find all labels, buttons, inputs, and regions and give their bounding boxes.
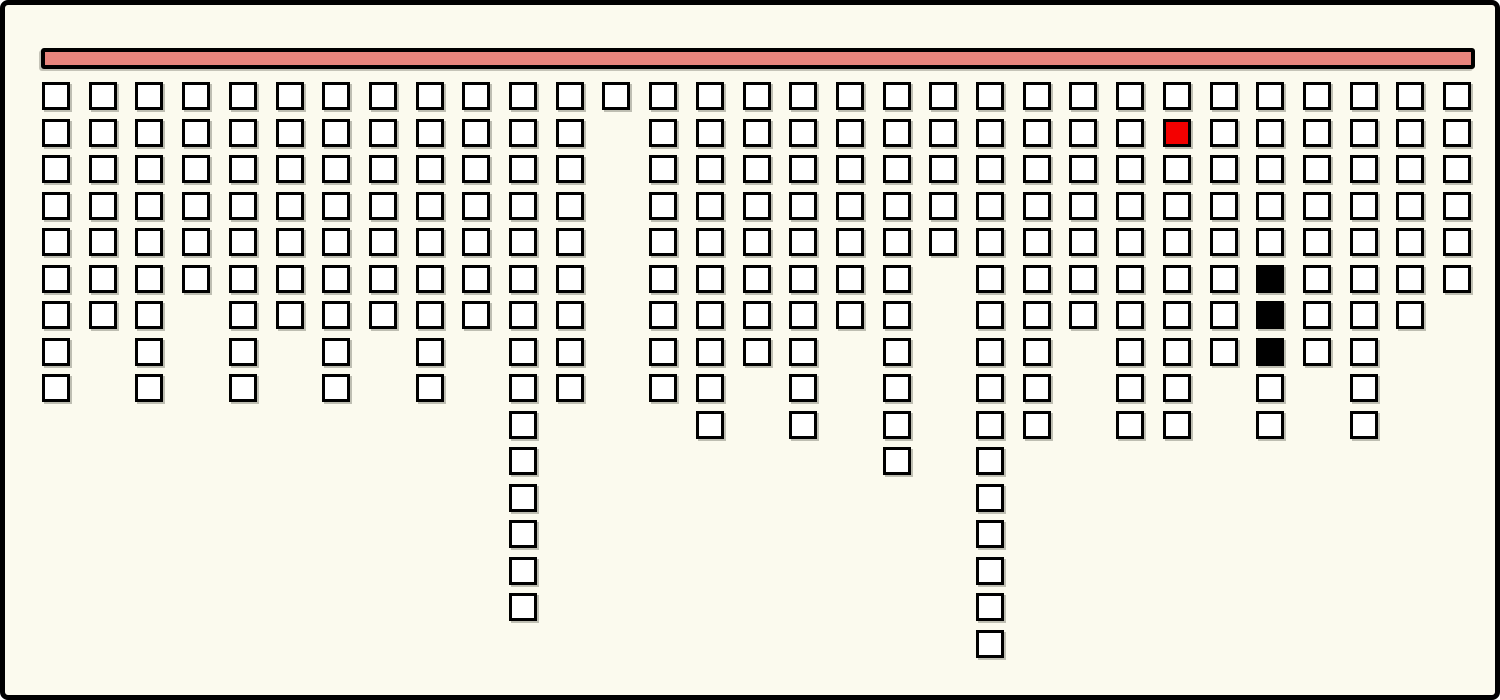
block[interactable] bbox=[416, 82, 444, 110]
block[interactable] bbox=[42, 228, 70, 256]
block[interactable] bbox=[696, 301, 724, 329]
block[interactable] bbox=[696, 228, 724, 256]
block[interactable] bbox=[836, 228, 864, 256]
block[interactable] bbox=[1256, 228, 1284, 256]
block[interactable] bbox=[649, 119, 677, 147]
block[interactable] bbox=[276, 192, 304, 220]
block[interactable] bbox=[1116, 119, 1144, 147]
block[interactable] bbox=[836, 265, 864, 293]
block[interactable] bbox=[929, 228, 957, 256]
block[interactable] bbox=[556, 338, 584, 366]
block[interactable] bbox=[743, 338, 771, 366]
block[interactable] bbox=[883, 82, 911, 110]
block[interactable] bbox=[836, 82, 864, 110]
block[interactable] bbox=[1350, 82, 1378, 110]
block[interactable] bbox=[1069, 228, 1097, 256]
block[interactable] bbox=[1303, 338, 1331, 366]
block[interactable] bbox=[789, 265, 817, 293]
block[interactable] bbox=[1116, 301, 1144, 329]
block[interactable] bbox=[1210, 338, 1238, 366]
block[interactable] bbox=[976, 228, 1004, 256]
block[interactable] bbox=[1350, 301, 1378, 329]
black-block[interactable] bbox=[1256, 265, 1284, 293]
block[interactable] bbox=[1116, 155, 1144, 183]
block[interactable] bbox=[602, 82, 630, 110]
block[interactable] bbox=[649, 192, 677, 220]
block[interactable] bbox=[883, 374, 911, 402]
block[interactable] bbox=[509, 119, 537, 147]
block[interactable] bbox=[883, 338, 911, 366]
block[interactable] bbox=[416, 192, 444, 220]
block[interactable] bbox=[883, 119, 911, 147]
black-block[interactable] bbox=[1256, 338, 1284, 366]
block[interactable] bbox=[1069, 82, 1097, 110]
block[interactable] bbox=[1303, 82, 1331, 110]
block[interactable] bbox=[649, 82, 677, 110]
block[interactable] bbox=[1069, 119, 1097, 147]
block[interactable] bbox=[789, 228, 817, 256]
block[interactable] bbox=[89, 82, 117, 110]
block[interactable] bbox=[1396, 228, 1424, 256]
block[interactable] bbox=[229, 155, 257, 183]
block[interactable] bbox=[743, 301, 771, 329]
block[interactable] bbox=[369, 119, 397, 147]
block[interactable] bbox=[789, 82, 817, 110]
block[interactable] bbox=[976, 119, 1004, 147]
block[interactable] bbox=[743, 265, 771, 293]
block[interactable] bbox=[276, 228, 304, 256]
block[interactable] bbox=[509, 265, 537, 293]
block[interactable] bbox=[696, 82, 724, 110]
block[interactable] bbox=[556, 155, 584, 183]
block[interactable] bbox=[1023, 265, 1051, 293]
block[interactable] bbox=[369, 155, 397, 183]
block[interactable] bbox=[1443, 119, 1471, 147]
block[interactable] bbox=[976, 374, 1004, 402]
block[interactable] bbox=[135, 192, 163, 220]
block[interactable] bbox=[789, 155, 817, 183]
block[interactable] bbox=[1210, 119, 1238, 147]
block[interactable] bbox=[1396, 82, 1424, 110]
block[interactable] bbox=[1396, 301, 1424, 329]
block[interactable] bbox=[416, 265, 444, 293]
block[interactable] bbox=[883, 155, 911, 183]
block[interactable] bbox=[322, 82, 350, 110]
block[interactable] bbox=[743, 119, 771, 147]
block[interactable] bbox=[182, 155, 210, 183]
block[interactable] bbox=[1163, 265, 1191, 293]
block[interactable] bbox=[696, 338, 724, 366]
block[interactable] bbox=[1303, 301, 1331, 329]
block[interactable] bbox=[789, 374, 817, 402]
block[interactable] bbox=[1210, 82, 1238, 110]
red-block[interactable] bbox=[1163, 119, 1191, 147]
block[interactable] bbox=[369, 265, 397, 293]
block[interactable] bbox=[135, 228, 163, 256]
block[interactable] bbox=[1163, 338, 1191, 366]
block[interactable] bbox=[322, 119, 350, 147]
block[interactable] bbox=[135, 82, 163, 110]
block[interactable] bbox=[369, 82, 397, 110]
block[interactable] bbox=[509, 520, 537, 548]
block[interactable] bbox=[789, 338, 817, 366]
block[interactable] bbox=[42, 82, 70, 110]
block[interactable] bbox=[1443, 82, 1471, 110]
block[interactable] bbox=[135, 301, 163, 329]
block[interactable] bbox=[276, 155, 304, 183]
block[interactable] bbox=[1210, 228, 1238, 256]
block[interactable] bbox=[1116, 82, 1144, 110]
block[interactable] bbox=[696, 374, 724, 402]
block[interactable] bbox=[883, 265, 911, 293]
block[interactable] bbox=[649, 228, 677, 256]
block[interactable] bbox=[883, 301, 911, 329]
block[interactable] bbox=[509, 557, 537, 585]
block[interactable] bbox=[322, 265, 350, 293]
block[interactable] bbox=[135, 338, 163, 366]
block[interactable] bbox=[229, 374, 257, 402]
block[interactable] bbox=[135, 265, 163, 293]
block[interactable] bbox=[462, 155, 490, 183]
block[interactable] bbox=[1443, 265, 1471, 293]
block[interactable] bbox=[229, 228, 257, 256]
block[interactable] bbox=[976, 411, 1004, 439]
block[interactable] bbox=[1396, 265, 1424, 293]
block[interactable] bbox=[89, 119, 117, 147]
block[interactable] bbox=[929, 82, 957, 110]
block[interactable] bbox=[976, 338, 1004, 366]
block[interactable] bbox=[1303, 119, 1331, 147]
block[interactable] bbox=[1303, 155, 1331, 183]
block[interactable] bbox=[976, 82, 1004, 110]
block[interactable] bbox=[696, 411, 724, 439]
block[interactable] bbox=[1163, 411, 1191, 439]
block[interactable] bbox=[1069, 265, 1097, 293]
block[interactable] bbox=[556, 82, 584, 110]
block[interactable] bbox=[1023, 119, 1051, 147]
block[interactable] bbox=[509, 82, 537, 110]
block[interactable] bbox=[789, 411, 817, 439]
block[interactable] bbox=[1443, 228, 1471, 256]
block[interactable] bbox=[1163, 192, 1191, 220]
block[interactable] bbox=[322, 338, 350, 366]
block[interactable] bbox=[1210, 301, 1238, 329]
block[interactable] bbox=[883, 447, 911, 475]
block[interactable] bbox=[1163, 155, 1191, 183]
block[interactable] bbox=[322, 301, 350, 329]
block[interactable] bbox=[696, 155, 724, 183]
block[interactable] bbox=[322, 228, 350, 256]
block[interactable] bbox=[89, 155, 117, 183]
block[interactable] bbox=[509, 192, 537, 220]
block[interactable] bbox=[836, 192, 864, 220]
block[interactable] bbox=[1023, 301, 1051, 329]
block[interactable] bbox=[229, 119, 257, 147]
block[interactable] bbox=[649, 301, 677, 329]
block[interactable] bbox=[229, 338, 257, 366]
block[interactable] bbox=[89, 301, 117, 329]
block[interactable] bbox=[883, 192, 911, 220]
block[interactable] bbox=[1163, 301, 1191, 329]
block[interactable] bbox=[1350, 119, 1378, 147]
block[interactable] bbox=[1350, 265, 1378, 293]
block[interactable] bbox=[416, 228, 444, 256]
block[interactable] bbox=[416, 338, 444, 366]
block[interactable] bbox=[976, 484, 1004, 512]
block[interactable] bbox=[1256, 119, 1284, 147]
block[interactable] bbox=[1396, 155, 1424, 183]
block[interactable] bbox=[462, 192, 490, 220]
block[interactable] bbox=[836, 301, 864, 329]
block[interactable] bbox=[229, 301, 257, 329]
block[interactable] bbox=[556, 301, 584, 329]
block[interactable] bbox=[462, 228, 490, 256]
block[interactable] bbox=[1443, 192, 1471, 220]
block[interactable] bbox=[1023, 192, 1051, 220]
block[interactable] bbox=[1396, 192, 1424, 220]
block[interactable] bbox=[182, 265, 210, 293]
block[interactable] bbox=[976, 557, 1004, 585]
block[interactable] bbox=[1023, 338, 1051, 366]
block[interactable] bbox=[276, 119, 304, 147]
block[interactable] bbox=[1116, 374, 1144, 402]
block[interactable] bbox=[42, 119, 70, 147]
block[interactable] bbox=[696, 192, 724, 220]
block[interactable] bbox=[696, 265, 724, 293]
block[interactable] bbox=[1210, 192, 1238, 220]
block[interactable] bbox=[649, 338, 677, 366]
block[interactable] bbox=[1116, 228, 1144, 256]
block[interactable] bbox=[976, 155, 1004, 183]
block[interactable] bbox=[649, 374, 677, 402]
block[interactable] bbox=[182, 82, 210, 110]
block-board bbox=[5, 5, 1495, 695]
block[interactable] bbox=[883, 411, 911, 439]
block[interactable] bbox=[1023, 155, 1051, 183]
block[interactable] bbox=[556, 228, 584, 256]
block[interactable] bbox=[1163, 82, 1191, 110]
block[interactable] bbox=[1116, 338, 1144, 366]
block[interactable] bbox=[1350, 338, 1378, 366]
block[interactable] bbox=[229, 192, 257, 220]
block[interactable] bbox=[1350, 374, 1378, 402]
block[interactable] bbox=[89, 265, 117, 293]
block[interactable] bbox=[696, 119, 724, 147]
block[interactable] bbox=[135, 374, 163, 402]
block[interactable] bbox=[1303, 228, 1331, 256]
block[interactable] bbox=[976, 192, 1004, 220]
block[interactable] bbox=[276, 265, 304, 293]
block[interactable] bbox=[416, 155, 444, 183]
block[interactable] bbox=[836, 155, 864, 183]
block[interactable] bbox=[509, 411, 537, 439]
block[interactable] bbox=[369, 228, 397, 256]
block[interactable] bbox=[1023, 82, 1051, 110]
block[interactable] bbox=[182, 228, 210, 256]
block[interactable] bbox=[509, 338, 537, 366]
block[interactable] bbox=[462, 82, 490, 110]
block[interactable] bbox=[929, 119, 957, 147]
block[interactable] bbox=[509, 301, 537, 329]
block[interactable] bbox=[1396, 119, 1424, 147]
block[interactable] bbox=[1023, 228, 1051, 256]
block[interactable] bbox=[1350, 228, 1378, 256]
block[interactable] bbox=[556, 192, 584, 220]
block[interactable] bbox=[1350, 192, 1378, 220]
block[interactable] bbox=[883, 228, 911, 256]
block[interactable] bbox=[976, 301, 1004, 329]
black-block[interactable] bbox=[1256, 301, 1284, 329]
block[interactable] bbox=[462, 265, 490, 293]
block[interactable] bbox=[1023, 411, 1051, 439]
block[interactable] bbox=[462, 119, 490, 147]
block[interactable] bbox=[182, 192, 210, 220]
block[interactable] bbox=[1163, 228, 1191, 256]
block[interactable] bbox=[976, 265, 1004, 293]
block[interactable] bbox=[135, 155, 163, 183]
block[interactable] bbox=[743, 228, 771, 256]
block[interactable] bbox=[789, 119, 817, 147]
block[interactable] bbox=[416, 374, 444, 402]
block[interactable] bbox=[1350, 411, 1378, 439]
block[interactable] bbox=[1069, 155, 1097, 183]
block[interactable] bbox=[836, 119, 864, 147]
block[interactable] bbox=[229, 265, 257, 293]
block[interactable] bbox=[42, 192, 70, 220]
block[interactable] bbox=[1069, 192, 1097, 220]
block[interactable] bbox=[743, 82, 771, 110]
block[interactable] bbox=[556, 374, 584, 402]
block[interactable] bbox=[1443, 155, 1471, 183]
block[interactable] bbox=[556, 119, 584, 147]
block[interactable] bbox=[42, 155, 70, 183]
block[interactable] bbox=[369, 301, 397, 329]
block[interactable] bbox=[416, 301, 444, 329]
block[interactable] bbox=[1210, 155, 1238, 183]
block[interactable] bbox=[509, 447, 537, 475]
block[interactable] bbox=[1163, 374, 1191, 402]
block[interactable] bbox=[789, 192, 817, 220]
block[interactable] bbox=[509, 484, 537, 512]
block[interactable] bbox=[322, 192, 350, 220]
block[interactable] bbox=[89, 192, 117, 220]
block[interactable] bbox=[976, 520, 1004, 548]
block[interactable] bbox=[42, 338, 70, 366]
block[interactable] bbox=[42, 374, 70, 402]
block[interactable] bbox=[509, 374, 537, 402]
block[interactable] bbox=[509, 593, 537, 621]
block[interactable] bbox=[1256, 155, 1284, 183]
block[interactable] bbox=[743, 155, 771, 183]
block[interactable] bbox=[416, 119, 444, 147]
block[interactable] bbox=[1303, 192, 1331, 220]
block[interactable] bbox=[509, 228, 537, 256]
block[interactable] bbox=[42, 265, 70, 293]
game-window bbox=[0, 0, 1500, 700]
block[interactable] bbox=[649, 265, 677, 293]
block[interactable] bbox=[1116, 192, 1144, 220]
block[interactable] bbox=[322, 155, 350, 183]
block[interactable] bbox=[1350, 155, 1378, 183]
block[interactable] bbox=[1210, 265, 1238, 293]
block[interactable] bbox=[789, 301, 817, 329]
block[interactable] bbox=[1116, 265, 1144, 293]
block[interactable] bbox=[1116, 411, 1144, 439]
block[interactable] bbox=[649, 155, 677, 183]
block[interactable] bbox=[1256, 192, 1284, 220]
block[interactable] bbox=[369, 192, 397, 220]
block[interactable] bbox=[976, 593, 1004, 621]
block[interactable] bbox=[1256, 411, 1284, 439]
block[interactable] bbox=[929, 155, 957, 183]
block[interactable] bbox=[509, 155, 537, 183]
block[interactable] bbox=[42, 301, 70, 329]
block[interactable] bbox=[1256, 82, 1284, 110]
block[interactable] bbox=[1069, 301, 1097, 329]
block[interactable] bbox=[462, 301, 490, 329]
block[interactable] bbox=[976, 630, 1004, 658]
block[interactable] bbox=[556, 265, 584, 293]
block[interactable] bbox=[276, 301, 304, 329]
block[interactable] bbox=[743, 192, 771, 220]
block[interactable] bbox=[135, 119, 163, 147]
block[interactable] bbox=[976, 447, 1004, 475]
block[interactable] bbox=[89, 228, 117, 256]
block[interactable] bbox=[182, 119, 210, 147]
block[interactable] bbox=[1303, 265, 1331, 293]
block[interactable] bbox=[1023, 374, 1051, 402]
block[interactable] bbox=[1256, 374, 1284, 402]
block[interactable] bbox=[929, 192, 957, 220]
block[interactable] bbox=[229, 82, 257, 110]
block[interactable] bbox=[322, 374, 350, 402]
block[interactable] bbox=[276, 82, 304, 110]
